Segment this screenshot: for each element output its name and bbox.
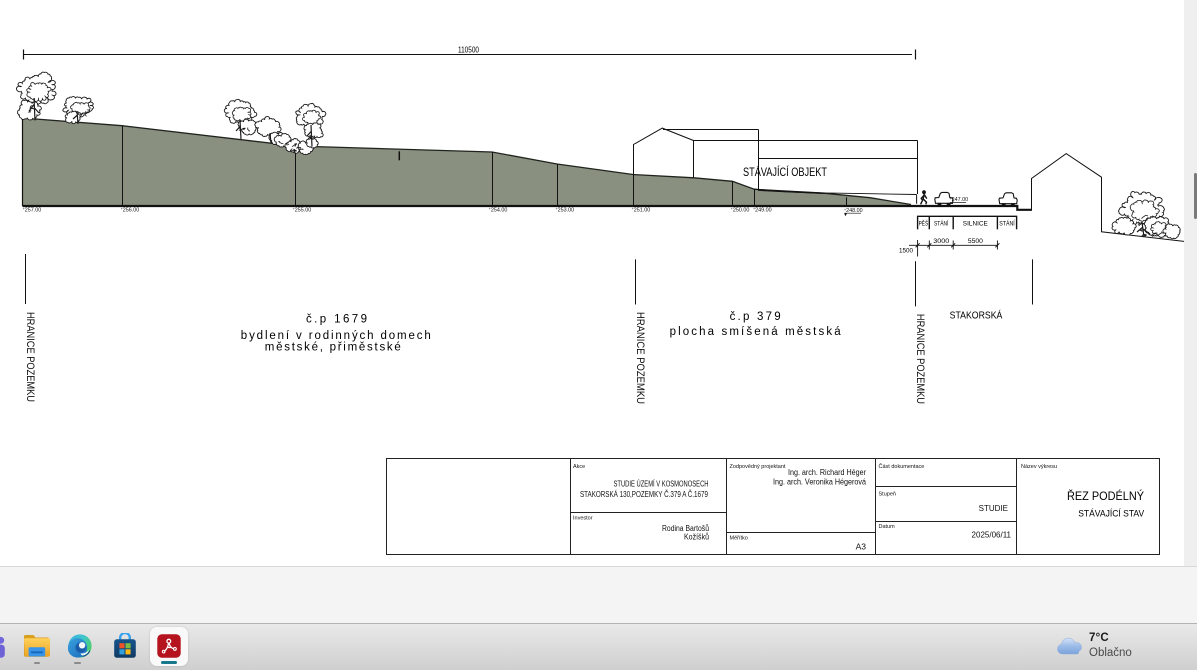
svg-text:Akce: Akce xyxy=(573,464,585,470)
svg-text:městské, přiměstské: městské, přiměstské xyxy=(265,342,401,354)
svg-text:Investor: Investor xyxy=(573,516,593,522)
svg-text:Název výkresu: Název výkresu xyxy=(1021,464,1057,470)
svg-text:STUDIE ÚZEMÍ V KOSMONOSECH: STUDIE ÚZEMÍ V KOSMONOSECH xyxy=(614,480,709,489)
svg-text:HRANICE POZEMKU: HRANICE POZEMKU xyxy=(914,314,926,404)
svg-text:HRANICE POZEMKU: HRANICE POZEMKU xyxy=(24,312,36,402)
svg-text:Kožíšků: Kožíšků xyxy=(684,533,709,542)
svg-text:ŘEZ PODÉLNÝ: ŘEZ PODÉLNÝ xyxy=(1067,490,1144,503)
svg-text:Část dokumentace: Část dokumentace xyxy=(879,463,925,470)
svg-text:STAKORSKÁ 130,POZEMKY Č.379 A: STAKORSKÁ 130,POZEMKY Č.379 A Č.1679 xyxy=(580,490,708,499)
svg-text:Zodpovědný projektant: Zodpovědný projektant xyxy=(730,464,786,470)
svg-text:3000: 3000 xyxy=(933,238,949,245)
svg-text:Měřítko: Měřítko xyxy=(730,536,748,542)
svg-text:Stupeň: Stupeň xyxy=(879,492,896,498)
svg-text:+251.00: +251.00 xyxy=(632,207,651,213)
svg-text:Ing. arch. Veronika Hégerová: Ing. arch. Veronika Hégerová xyxy=(773,478,866,487)
svg-text:č.p 379: č.p 379 xyxy=(730,311,781,323)
svg-text:+257.00: +257.00 xyxy=(23,207,42,213)
svg-text:A3: A3 xyxy=(856,542,867,552)
svg-text:PĚŠ: PĚŠ xyxy=(919,219,929,228)
svg-text:+253.00: +253.00 xyxy=(556,207,575,213)
svg-text:+255.00: +255.00 xyxy=(293,207,312,213)
svg-text:STAKORSKÁ: STAKORSKÁ xyxy=(950,309,1003,322)
svg-text:STÁVAJÍCÍ STAV: STÁVAJÍCÍ STAV xyxy=(1078,509,1145,520)
svg-text:2025/06/11: 2025/06/11 xyxy=(972,531,1012,540)
svg-text:+254.00: +254.00 xyxy=(489,207,508,213)
svg-text:STÁVAJÍCÍ OBJEKT: STÁVAJÍCÍ OBJEKT xyxy=(743,166,827,179)
svg-text:+256.00: +256.00 xyxy=(121,207,140,213)
svg-text:Ing. arch. Richard Héger: Ing. arch. Richard Héger xyxy=(788,468,866,477)
svg-text:+250.00: +250.00 xyxy=(731,207,750,213)
svg-text:110500: 110500 xyxy=(458,46,479,55)
svg-text:Datum: Datum xyxy=(879,524,896,530)
svg-text:STÁNÍ: STÁNÍ xyxy=(934,219,949,228)
svg-text:č.p 1679: č.p 1679 xyxy=(306,314,367,326)
svg-text:HRANICE POZEMKU: HRANICE POZEMKU xyxy=(634,312,646,404)
svg-text:+249.00: +249.00 xyxy=(753,207,772,213)
svg-text:bydlení v rodinných domech: bydlení v rodinných domech xyxy=(241,330,431,342)
svg-text:STÁNÍ: STÁNÍ xyxy=(999,219,1015,228)
svg-text:STUDIE: STUDIE xyxy=(979,504,1008,513)
svg-text:5500: 5500 xyxy=(968,238,983,245)
svg-text:plocha smíšená městská: plocha smíšená městská xyxy=(670,326,842,338)
svg-text:1500: 1500 xyxy=(899,248,913,255)
svg-text:SILNICE: SILNICE xyxy=(963,221,989,228)
